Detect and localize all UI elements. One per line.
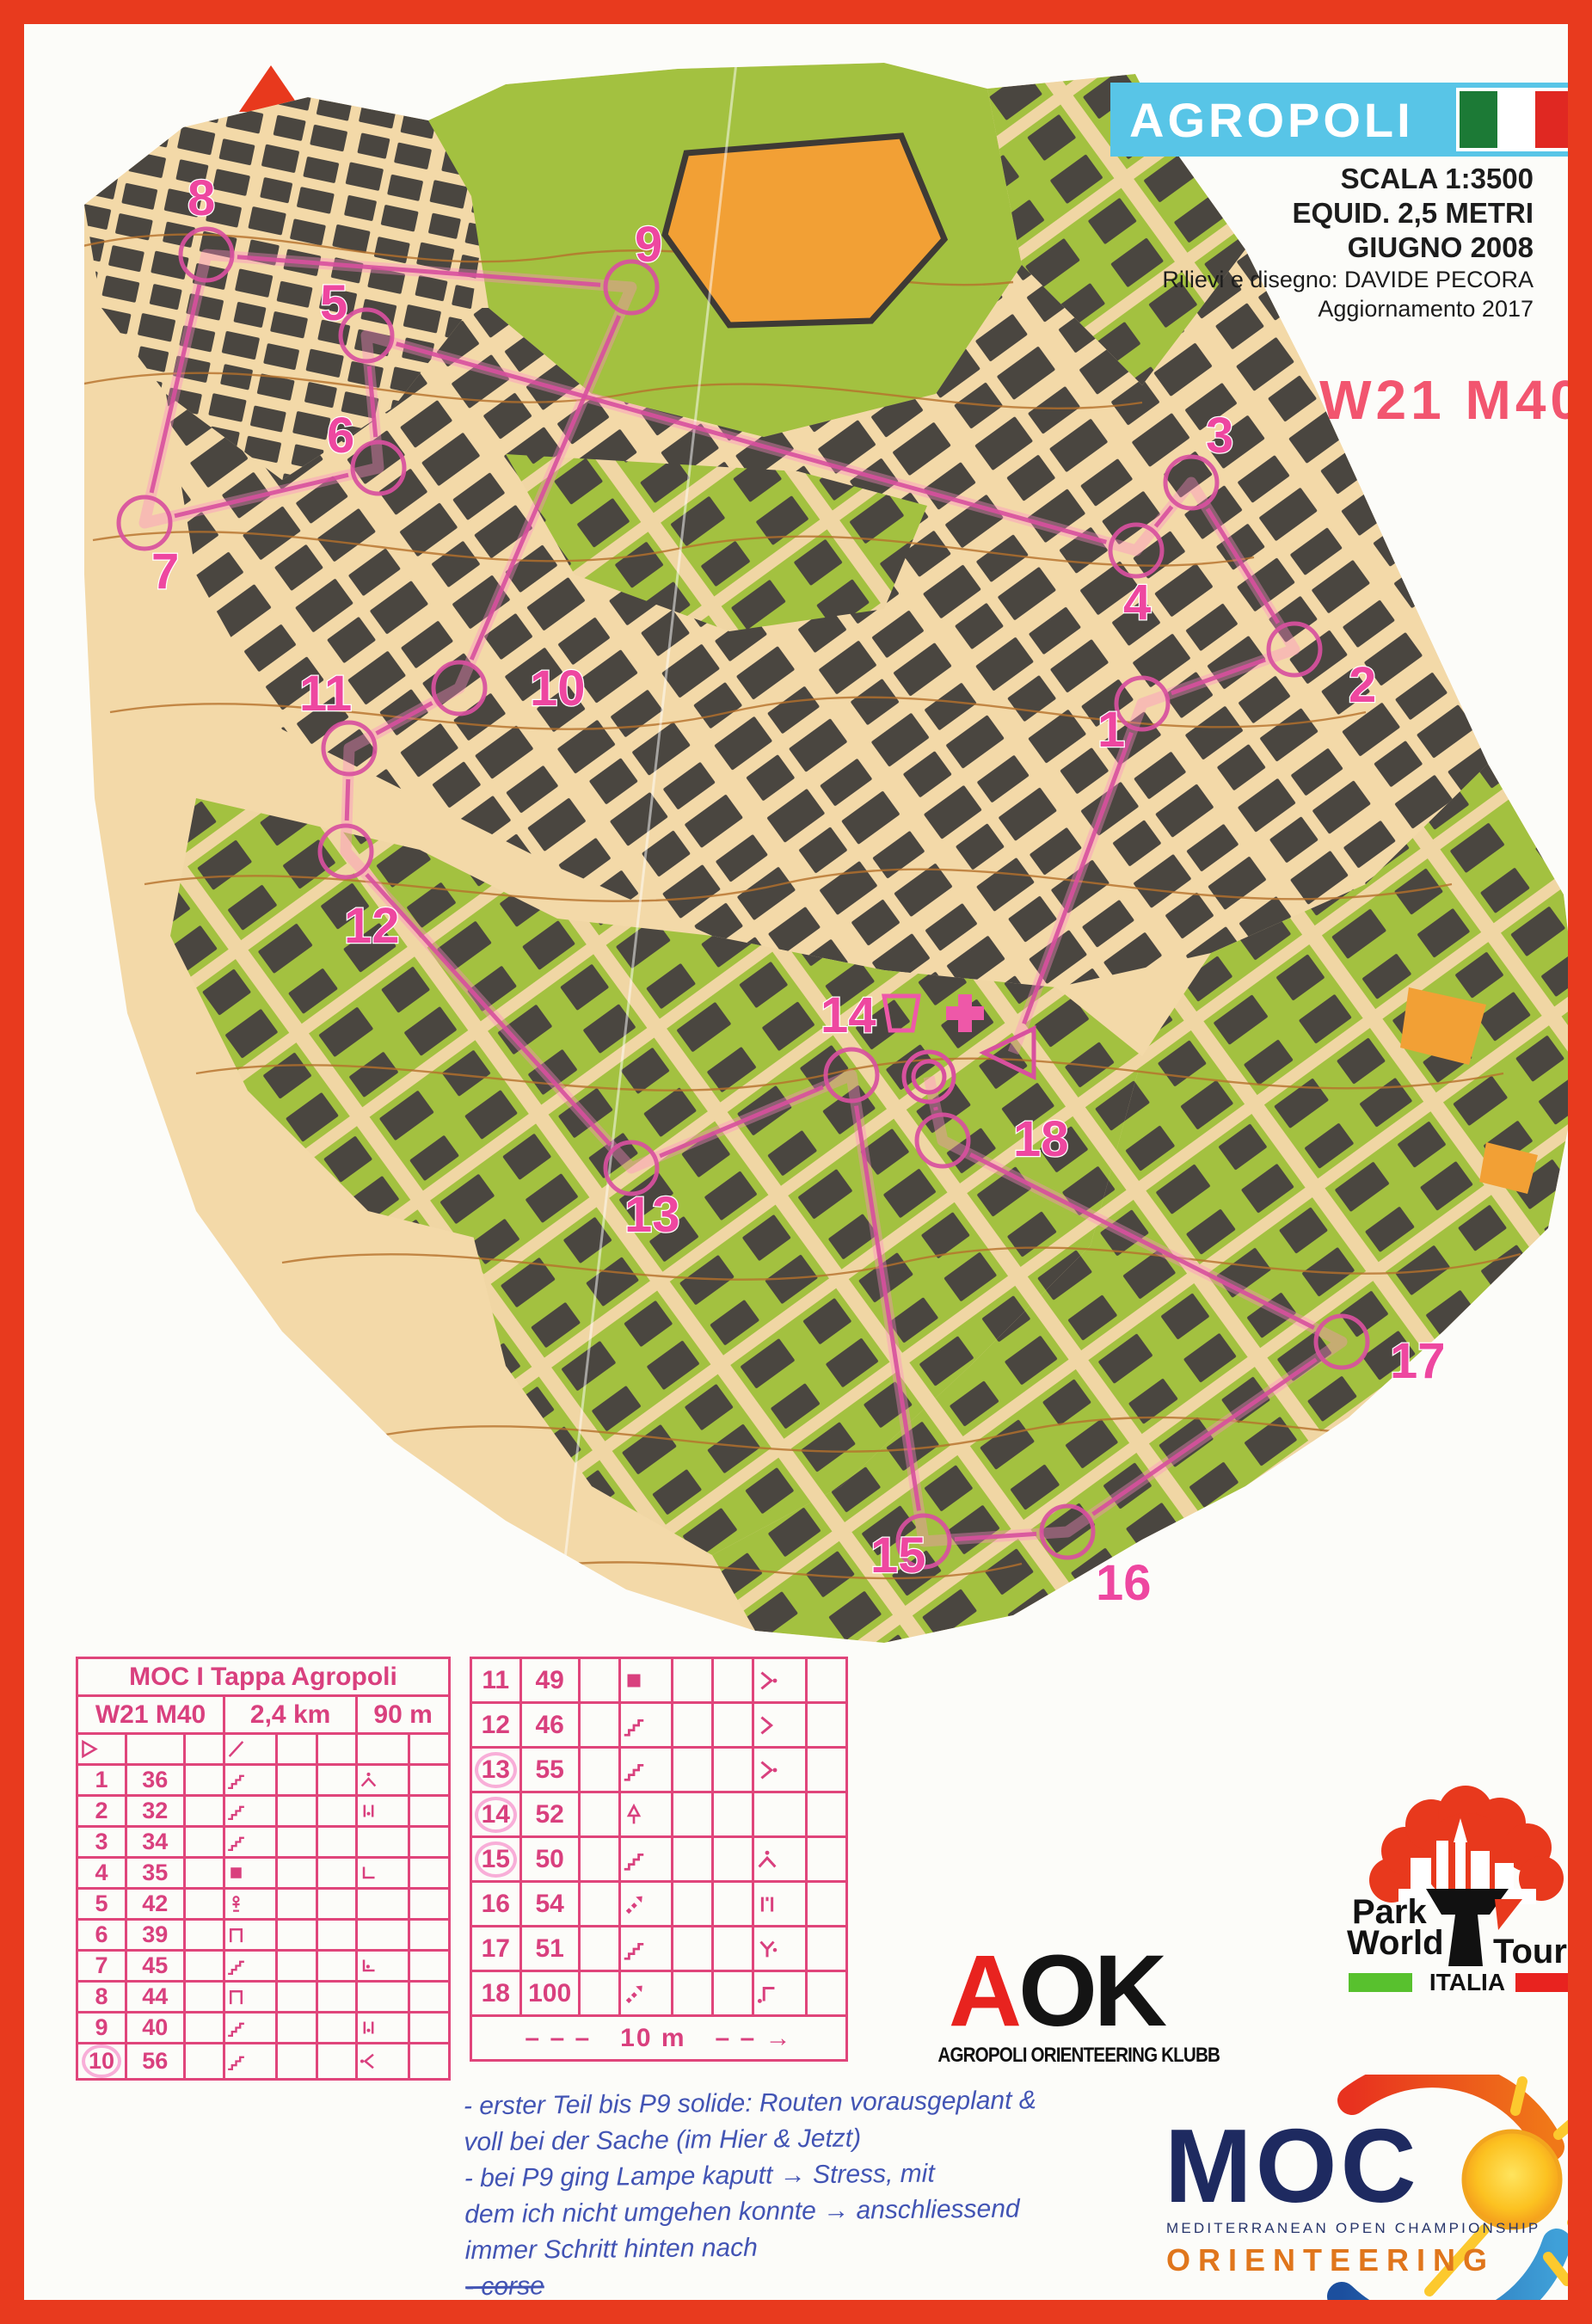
control-code-cell: 45 [126, 1951, 185, 1982]
control-number: 15 [870, 1528, 926, 1583]
control-number-cell: 12 [471, 1703, 521, 1748]
tree-symbol [621, 1802, 647, 1828]
control-row: 18100 [471, 1971, 847, 2016]
dashed-arrow-symbol [621, 1981, 647, 2007]
control-number: 3 [1206, 408, 1233, 464]
feature-symbol-cell [224, 1827, 277, 1858]
stairs-symbol [225, 2017, 247, 2038]
feature-symbol-cell [224, 1920, 277, 1951]
control-row: 844 [77, 1982, 450, 2013]
control-code-cell: 49 [520, 1658, 579, 1703]
control-number-cell: 1 [77, 1765, 126, 1796]
control-number: 10 [530, 661, 586, 716]
feature-symbol-cell [224, 1796, 277, 1827]
control-number: 8 [187, 170, 215, 226]
svg-text:ORIENTEERING: ORIENTEERING [1166, 2242, 1495, 2278]
fork-symbol [754, 1936, 780, 1962]
control-number-cell: 2 [77, 1796, 126, 1827]
control-number: 2 [1349, 657, 1376, 713]
control-number: 12 [344, 898, 400, 954]
stairs-symbol [621, 1757, 647, 1783]
control-number: 9 [635, 217, 662, 273]
feature-symbol-cell [224, 1951, 277, 1982]
handwritten-notes: - erster Teil bis P9 solide: Routen vora… [464, 2081, 1171, 2306]
map-scale: SCALA 1:3500 [1162, 162, 1534, 196]
location-symbol-cell [357, 2013, 409, 2044]
control-row: 745 [77, 1951, 450, 1982]
aok-logo-text: AOK [919, 1940, 1194, 2042]
sheet-course: W21 M40 [77, 1696, 224, 1734]
location-symbol-cell [753, 1882, 807, 1927]
control-number: 14 [821, 987, 876, 1043]
control-number-cell: 8 [77, 1982, 126, 2013]
stairs-symbol [225, 1831, 247, 1853]
map-credit: Rilievi e disegno: DAVIDE PECORA [1162, 265, 1534, 294]
control-row: 940 [77, 2013, 450, 2044]
control-code-cell: 46 [520, 1703, 579, 1748]
control-number: 5 [320, 275, 347, 331]
feature-symbol-cell [224, 1982, 277, 2013]
control-code-cell: 32 [126, 1796, 185, 1827]
aok-logo: AOK AGROPOLI ORIENTEERING KLUBB [919, 1940, 1194, 2068]
between-walls-symbol [358, 2017, 379, 2038]
control-row: 435 [77, 1858, 450, 1889]
svg-text:ITALIA: ITALIA [1429, 1969, 1505, 1995]
control-code-cell: 51 [520, 1927, 579, 1971]
feature-symbol-cell [224, 1765, 277, 1796]
feature-symbol-cell [619, 1658, 673, 1703]
control-code-cell: 42 [126, 1889, 185, 1920]
course-leg [347, 779, 348, 821]
control-code-cell: 34 [126, 1827, 185, 1858]
control-row: 1056 [77, 2044, 450, 2080]
control-number-cell: 11 [471, 1658, 521, 1703]
building-symbol [225, 1862, 247, 1884]
feature-symbol-cell [619, 1792, 673, 1837]
course-leg [936, 1107, 937, 1110]
control-number: 13 [624, 1187, 680, 1243]
control-code-cell: 52 [520, 1792, 579, 1837]
sheet-footer-scale: – – – 10 m – – → [471, 2016, 847, 2061]
map-date: GIUGNO 2008 [1162, 231, 1534, 265]
stairs-symbol [225, 1955, 247, 1977]
control-number-cell: 3 [77, 1827, 126, 1858]
location-symbol-cell [753, 1703, 807, 1748]
control-code-cell: 50 [520, 1837, 579, 1882]
control-code-cell: 54 [520, 1882, 579, 1927]
control-number-cell [77, 1734, 126, 1765]
title-banner: AGROPOLI [1110, 83, 1585, 157]
location-symbol-cell [753, 1927, 807, 1971]
control-row: 1452 [471, 1792, 847, 1837]
control-row: 1550 [471, 1837, 847, 1882]
control-number: 1 [1097, 702, 1125, 758]
italy-flag-icon [1456, 88, 1577, 151]
location-symbol-cell [753, 1837, 807, 1882]
control-row: 1355 [471, 1748, 847, 1792]
location-symbol-cell [753, 1658, 807, 1703]
corner-dot-r-symbol [754, 1981, 780, 2007]
control-row: 1654 [471, 1882, 847, 1927]
control-row: 232 [77, 1796, 450, 1827]
control-row: 639 [77, 1920, 450, 1951]
feature-symbol-cell [224, 2013, 277, 2044]
svg-text:World: World [1347, 1924, 1444, 1962]
control-row: 542 [77, 1889, 450, 1920]
control-number-cell: 18 [471, 1971, 521, 2016]
control-code-cell: 36 [126, 1765, 185, 1796]
stairs-symbol [621, 1847, 647, 1872]
aok-logo-subtitle: AGROPOLI ORIENTEERING KLUBB [937, 2044, 1174, 2068]
stairs-symbol [621, 1936, 647, 1962]
stairs-symbol [225, 1769, 247, 1791]
moc-logo: MOC MEDITERRANEAN OPEN CHAMPIONSHIP ORIE… [1127, 2075, 1592, 2321]
control-number-cell: 5 [77, 1889, 126, 1920]
feature-symbol-cell [619, 1882, 673, 1927]
control-row: 136 [77, 1765, 450, 1796]
svg-text:MOC: MOC [1165, 2107, 1420, 2224]
control-code-cell: 44 [126, 1982, 185, 2013]
sheet-length: 2,4 km [224, 1696, 357, 1734]
control-code-cell [126, 1734, 185, 1765]
control-row: 334 [77, 1827, 450, 1858]
control-number-cell: 14 [471, 1792, 521, 1837]
map-equidistance: EQUID. 2,5 METRI [1162, 196, 1534, 231]
feature-symbol-cell [619, 1748, 673, 1792]
control-number-cell: 4 [77, 1858, 126, 1889]
location-symbol-cell [357, 2044, 409, 2080]
dashed-arrow-symbol [621, 1891, 647, 1917]
control-row [77, 1734, 450, 1765]
course-class-label: W21 M40 [1241, 368, 1585, 432]
control-number-cell: 13 [471, 1748, 521, 1792]
control-row: 1246 [471, 1703, 847, 1748]
control-code-cell: 35 [126, 1858, 185, 1889]
control-number: 6 [327, 408, 354, 464]
west-dot-symbol [358, 2050, 379, 2072]
control-number-cell: 10 [77, 2044, 126, 2080]
control-number-cell: 15 [471, 1837, 521, 1882]
feature-symbol-cell [619, 1837, 673, 1882]
bend-symbol [754, 1712, 780, 1738]
location-symbol-cell [357, 1765, 409, 1796]
control-number: 4 [1123, 575, 1151, 630]
control-code-cell: 56 [126, 2044, 185, 2080]
v-dot-symbol [358, 1769, 379, 1791]
location-symbol-cell [753, 1971, 807, 2016]
park-world-tour-logo: Park World Tour ITALIA [1347, 1768, 1588, 2014]
between-walls-symbol [358, 1800, 379, 1822]
stairs-symbol [621, 1712, 647, 1738]
stairs-symbol [225, 2050, 247, 2072]
start-symbol [78, 1738, 100, 1760]
scanned-map-page: 123456789101112131415161718 AGROPOLI SCA… [0, 0, 1592, 2324]
control-row: 1751 [471, 1927, 847, 1971]
location-symbol-cell [357, 1951, 409, 1982]
location-symbol-cell [357, 1796, 409, 1827]
control-code-cell: 55 [520, 1748, 579, 1792]
east-dot-symbol [754, 1668, 780, 1694]
note-line: - corse [465, 2262, 1171, 2306]
control-table-left: MOC I Tappa AgropoliW21 M402,4 km90 m136… [76, 1657, 451, 2081]
building-symbol [621, 1668, 647, 1694]
control-code-cell: 40 [126, 2013, 185, 2044]
canopy-symbol [225, 1986, 247, 2007]
feature-symbol-cell [619, 1703, 673, 1748]
control-code-cell: 39 [126, 1920, 185, 1951]
location-symbol-cell [753, 1748, 807, 1792]
corner-l-symbol [358, 1862, 379, 1884]
map-update: Aggiornamento 2017 [1162, 294, 1534, 323]
feature-symbol-cell [224, 1858, 277, 1889]
stairs-symbol [225, 1800, 247, 1822]
control-row: 1149 [471, 1658, 847, 1703]
control-code-cell: 100 [520, 1971, 579, 2016]
sheet-title: MOC I Tappa Agropoli [77, 1658, 450, 1696]
control-number: 7 [151, 544, 179, 599]
control-number: 17 [1390, 1333, 1446, 1389]
feature-symbol-cell [619, 1971, 673, 2016]
corner-dot-l-symbol [358, 1955, 379, 1977]
svg-text:Tour: Tour [1493, 1933, 1567, 1970]
svg-text:MEDITERRANEAN OPEN CHAMPIONSHI: MEDITERRANEAN OPEN CHAMPIONSHIP [1166, 2220, 1540, 2236]
location-symbol-cell [357, 1858, 409, 1889]
feature-symbol-cell [224, 1889, 277, 1920]
map-info-block: SCALA 1:3500 EQUID. 2,5 METRI GIUGNO 200… [1162, 162, 1534, 323]
slash-symbol [225, 1738, 247, 1760]
control-table-right: 114912461355145215501654175118100– – – 1… [470, 1657, 848, 2062]
sheet-climb: 90 m [357, 1696, 450, 1734]
feature-symbol-cell [224, 2044, 277, 2080]
between-pillars-symbol [754, 1891, 780, 1917]
control-number: 16 [1096, 1555, 1152, 1611]
feature-symbol-cell [619, 1927, 673, 1971]
control-number-cell: 7 [77, 1951, 126, 1982]
map-title: AGROPOLI [1110, 92, 1414, 148]
control-number-cell: 6 [77, 1920, 126, 1951]
canopy-symbol [225, 1924, 247, 1946]
control-number-cell: 9 [77, 2013, 126, 2044]
control-number-cell: 16 [471, 1882, 521, 1927]
control-number-cell: 17 [471, 1927, 521, 1971]
feature-symbol-cell [224, 1734, 277, 1765]
east-dot-symbol [754, 1757, 780, 1783]
statue-symbol [225, 1893, 247, 1915]
control-number: 18 [1013, 1111, 1069, 1167]
control-number: 11 [299, 666, 352, 722]
v-dot-symbol [754, 1847, 780, 1872]
